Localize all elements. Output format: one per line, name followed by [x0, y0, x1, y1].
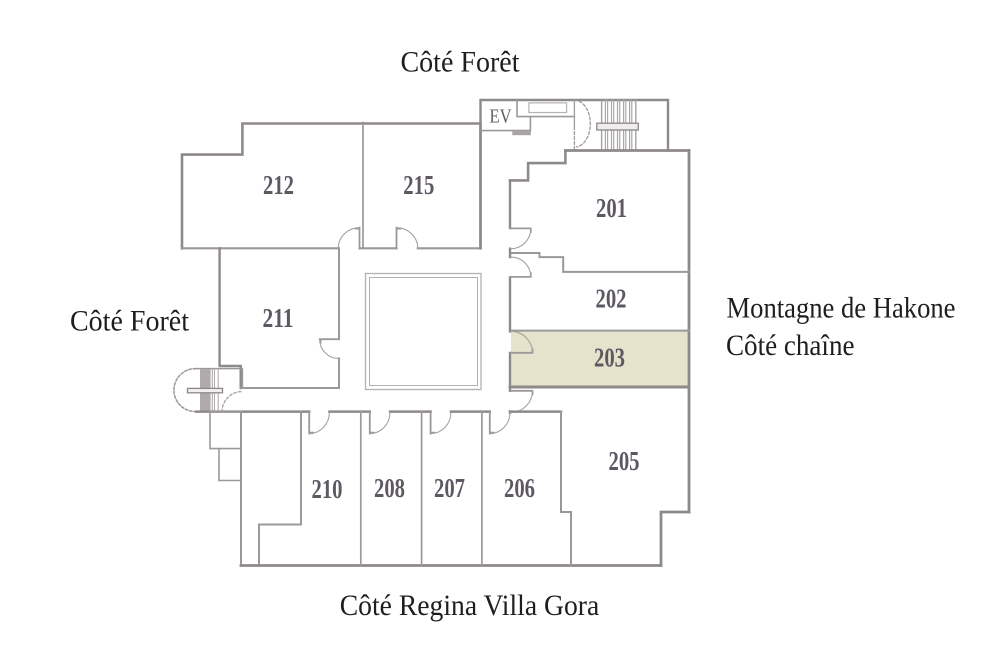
svg-text:211: 211 [263, 303, 294, 333]
svg-text:Côté Regina Villa Gora: Côté Regina Villa Gora [340, 589, 600, 622]
svg-text:210: 210 [312, 474, 343, 504]
svg-text:Côté chaîne: Côté chaîne [726, 329, 855, 362]
svg-text:201: 201 [596, 193, 627, 223]
svg-text:207: 207 [434, 473, 465, 503]
svg-text:Côté Forêt: Côté Forêt [70, 304, 190, 337]
svg-text:Montagne de Hakone: Montagne de Hakone [727, 292, 956, 325]
svg-text:202: 202 [596, 284, 627, 314]
svg-text:EV: EV [490, 106, 512, 128]
svg-text:215: 215 [403, 170, 434, 200]
svg-text:208: 208 [374, 473, 405, 503]
svg-text:Côté Forêt: Côté Forêt [401, 46, 521, 79]
svg-text:203: 203 [594, 343, 625, 373]
svg-text:206: 206 [504, 473, 535, 503]
svg-text:205: 205 [609, 446, 640, 476]
svg-text:212: 212 [263, 170, 294, 200]
